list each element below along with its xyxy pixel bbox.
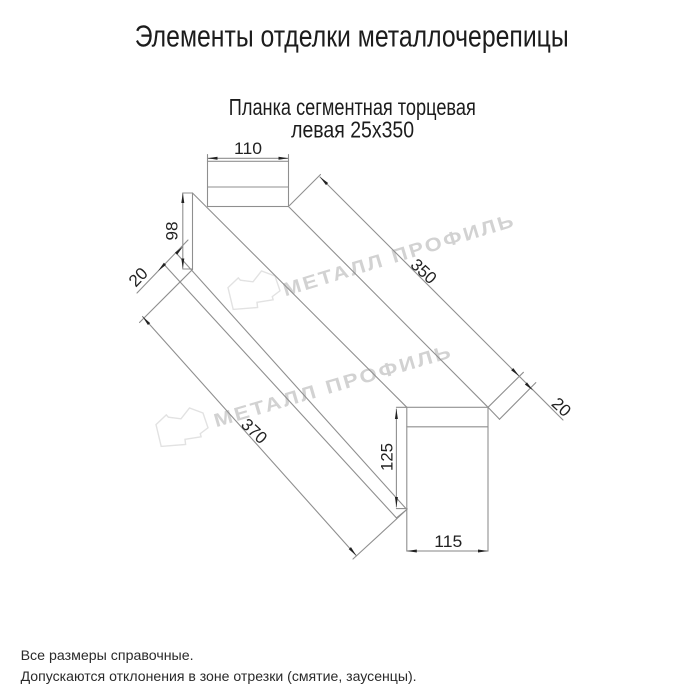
svg-text:Все размеры справочные.: Все размеры справочные. (21, 647, 194, 663)
svg-text:110: 110 (234, 139, 262, 158)
svg-text:98: 98 (163, 222, 182, 241)
svg-text:Допускаются отклонения в зоне: Допускаются отклонения в зоне отрезки (с… (21, 668, 417, 684)
svg-text:115: 115 (434, 532, 462, 551)
svg-text:Элементы отделки металлочерепи: Элементы отделки металлочерепицы (135, 19, 569, 54)
svg-text:125: 125 (377, 443, 396, 471)
svg-text:левая 25х350: левая 25х350 (291, 117, 414, 143)
